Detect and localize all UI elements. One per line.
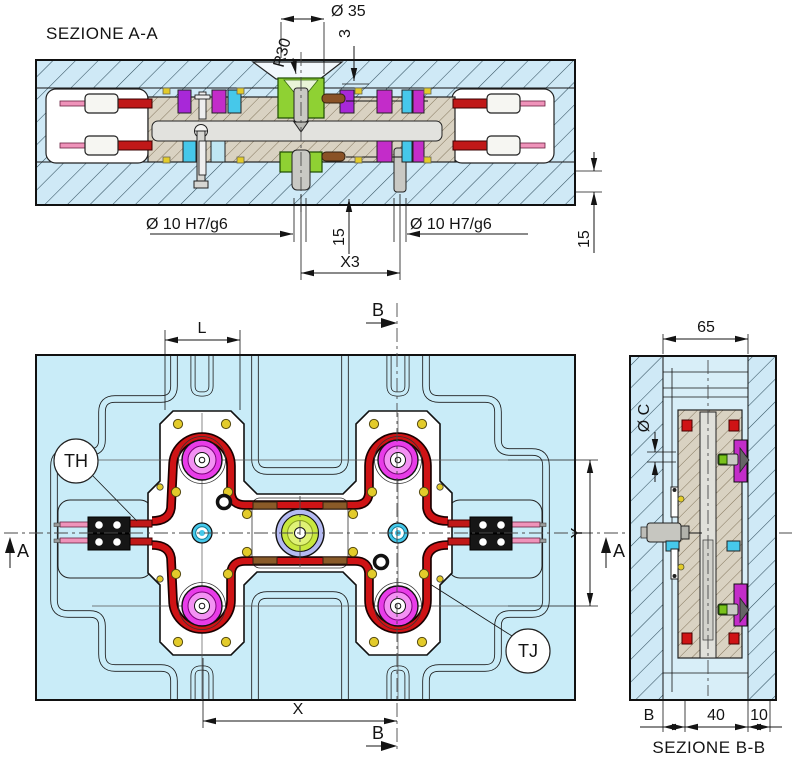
boss-top-left: [179, 437, 226, 484]
cad-drawing-canvas: SEZIONE A-A Ø 35 R30 3 Ø 10 H7/g6 Ø 10 H…: [0, 0, 800, 772]
gate-insert: [253, 502, 277, 509]
dim-B-seg: B: [644, 707, 655, 724]
marker-a-right: A: [613, 541, 625, 561]
boss-bottom-left: [179, 583, 226, 630]
drawing-svg: SEZIONE A-A Ø 35 R30 3 Ø 10 H7/g6 Ø 10 H…: [0, 0, 800, 772]
boss-top-right: [375, 437, 422, 484]
dim-L: L: [198, 320, 207, 337]
gate-insert: [323, 557, 347, 564]
marker-a-left: A: [17, 541, 29, 561]
dim-65: 65: [697, 319, 715, 336]
section-aa-view: [36, 52, 602, 212]
section-arrow-b-bottom: [381, 741, 397, 751]
guide-bush: [218, 496, 231, 509]
seal-section: [729, 420, 739, 431]
dim-dia10-left: Ø 10 H7/g6: [146, 216, 228, 233]
dim-dia10-right: Ø 10 H7/g6: [410, 216, 492, 233]
section-arrow-a-right: [601, 537, 611, 553]
guide-bush: [375, 556, 388, 569]
balloon-th: TH: [64, 451, 88, 471]
section-aa-title: SEZIONE A-A: [46, 24, 158, 43]
dim-x3: X3: [340, 254, 360, 271]
dim-Y: Y: [569, 527, 586, 538]
dim-40: 40: [707, 707, 725, 724]
seal-section: [682, 420, 692, 431]
dim-3: 3: [337, 29, 354, 38]
dim-X: X: [293, 701, 304, 718]
dim-dia35: Ø 35: [331, 3, 366, 20]
balloon-tj: TJ: [518, 641, 538, 661]
boss-bottom-right: [375, 583, 422, 630]
section-arrow-a-left: [5, 537, 15, 553]
seal-section: [729, 633, 739, 644]
seal-section: [682, 633, 692, 644]
marker-b-bottom: B: [372, 723, 384, 743]
marker-b-top: B: [372, 300, 384, 320]
section-arrow-b-top: [381, 318, 397, 328]
gate-insert: [323, 502, 347, 509]
gate-insert: [253, 557, 277, 564]
dim-15-mid: 15: [331, 228, 348, 246]
dim-10: 10: [750, 707, 768, 724]
dim-diaC: Ø C: [636, 404, 653, 432]
section-bb-title: SEZIONE B-B: [652, 738, 765, 757]
dim-15-right: 15: [576, 230, 593, 248]
